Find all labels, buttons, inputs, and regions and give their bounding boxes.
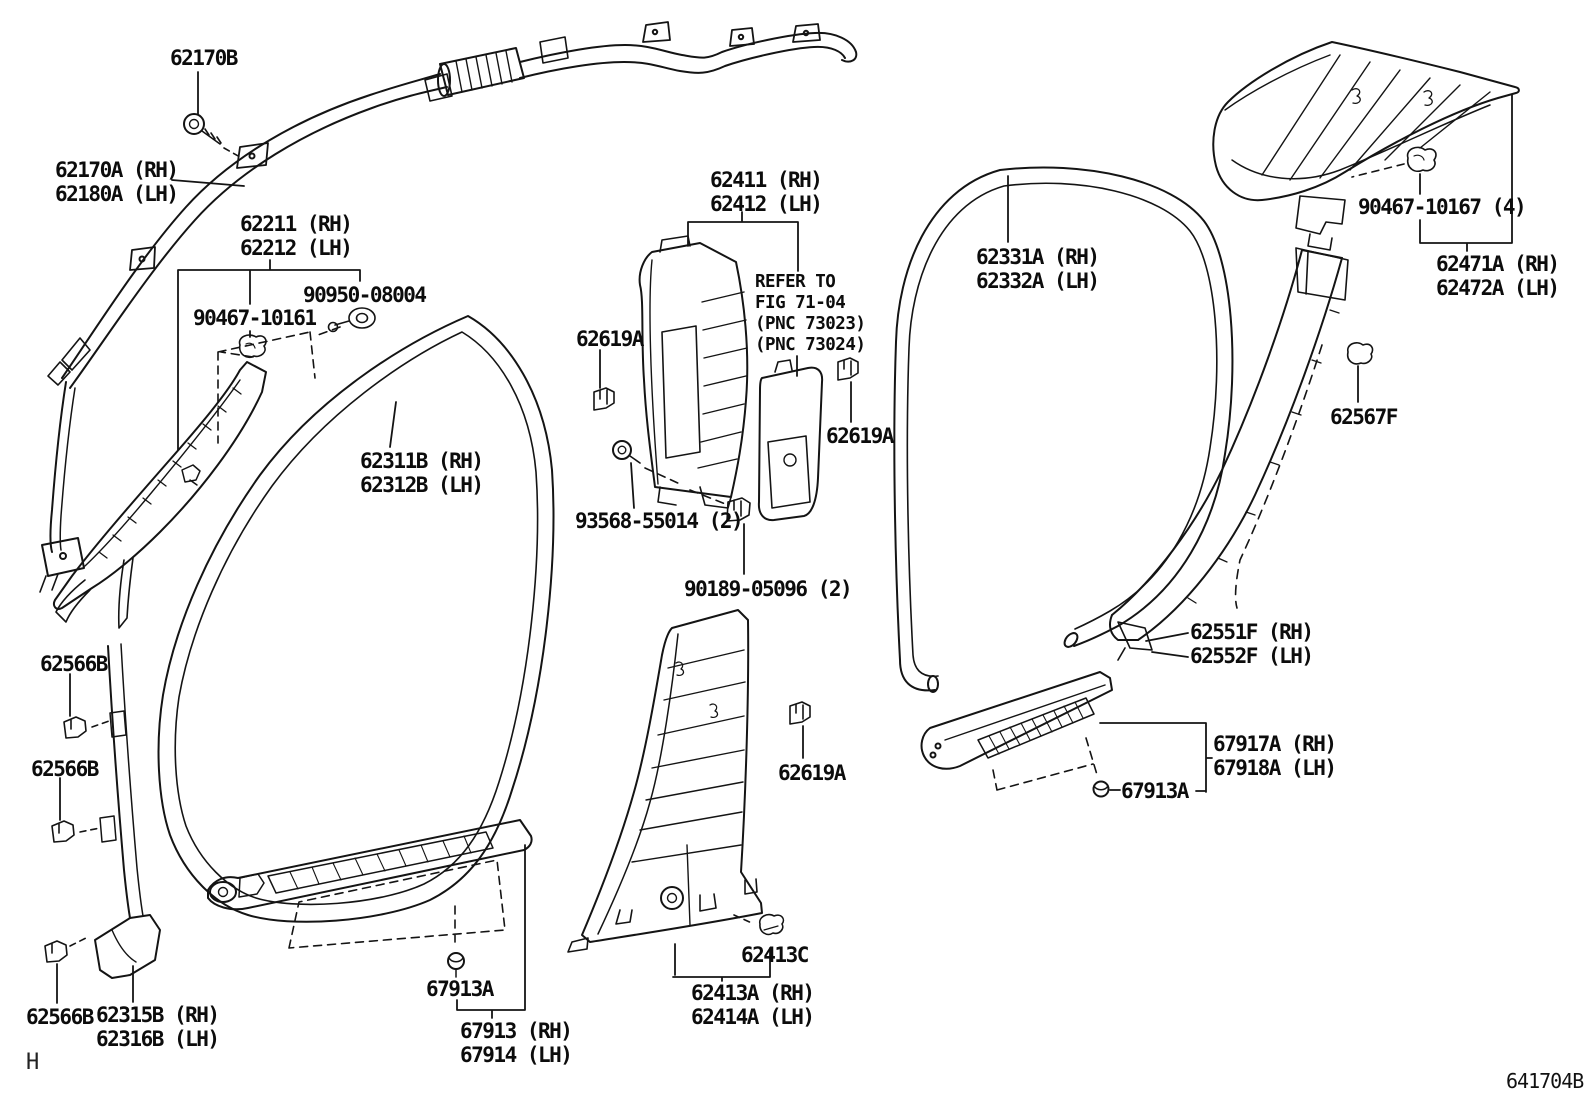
clip-62566B-icon-1 [64,674,112,738]
part-label-62315B-62316B: 62315B (RH) 62316B (LH) [96,1003,219,1051]
part-label-67913A-right: 67913A [1121,779,1188,803]
fastener-67913A-left-icon [448,953,464,977]
part-label-90467-10161: 90467-10161 [193,306,316,330]
part-label-90467-10167: 90467-10167 (4) [1358,195,1525,219]
part-label-62619A-2: 62619A [826,424,893,448]
c-pillar-garnish-art [1213,42,1519,251]
screw-93568-icon [613,441,728,508]
part-label-62413A-62414A: 62413A (RH) 62414A (LH) [691,981,814,1029]
part-label-62211-62212: 62211 (RH) 62212 (LH) [240,212,351,260]
diagram-line-art [0,0,1592,1099]
part-label-62619A-1: 62619A [576,327,643,351]
b-pillar-switch-panel-art [759,356,822,520]
drawing-code: 641704B [1506,1071,1583,1091]
part-label-62411-62412: 62411 (RH) 62412 (LH) [710,168,821,216]
part-label-62311B-62312B: 62311B (RH) 62312B (LH) [360,449,483,497]
part-label-90189-05096: 90189-05096 (2) [684,577,851,601]
clip-62619A-icon-1 [594,350,614,410]
page-marker: H [26,1052,39,1074]
fastener-67913A-right-icon [1094,782,1121,797]
a-pillar-bracket-lines [172,72,360,450]
front-door-weatherstrip-art [159,316,554,922]
clip-62567F-icon [1348,343,1373,402]
part-label-62566B-3: 62566B [26,1005,93,1029]
part-label-62567F: 62567F [1330,405,1397,429]
a-pillar-upper-garnish-art [54,362,266,628]
rear-scuff-plate-art [922,672,1212,792]
clip-62619A-icon-2 [838,358,858,422]
clip-90467-10161-icon [240,335,266,357]
part-label-93568-55014: 93568-55014 (2) [575,509,742,533]
part-label-90950-08004: 90950-08004 [303,283,426,307]
cowl-side-trim-art [95,644,160,1002]
part-label-62413C: 62413C [741,943,808,967]
clip-90467-10167-icon [1408,147,1436,171]
clip-62566B-icon-2 [52,778,100,842]
b-pillar-lower-garnish-art [568,610,770,981]
b-pillar-upper-garnish-art [640,212,798,508]
part-label-62566B-1: 62566B [40,652,107,676]
part-label-62471A-62472A: 62471A (RH) 62472A (LH) [1436,252,1559,300]
part-label-67917A-67918A: 67917A (RH) 67918A (LH) [1213,732,1336,780]
part-label-62170B: 62170B [170,46,237,70]
clip-62619A-icon-3 [790,702,810,758]
clip-62566B-icon-3 [45,938,86,1003]
part-label-62566B-2: 62566B [31,757,98,781]
part-label-62170A-62180A: 62170A (RH) 62180A (LH) [55,158,178,206]
screw-62170B-icon [184,114,240,157]
part-label-62331A-62332A: 62331A (RH) 62332A (LH) [976,245,1099,293]
part-label-67913A-left: 67913A [426,977,493,1001]
part-label-refer-note: REFER TO FIG 71-04 (PNC 73023) (PNC 7302… [755,272,865,356]
part-label-62551F-62552F: 62551F (RH) 62552F (LH) [1190,620,1313,668]
parts-diagram-canvas: H 641704B 62170B62170A (RH) 62180A (LH)6… [0,0,1592,1099]
part-label-67913-67914: 67913 (RH) 67914 (LH) [460,1019,571,1067]
part-label-62619A-3: 62619A [778,761,845,785]
